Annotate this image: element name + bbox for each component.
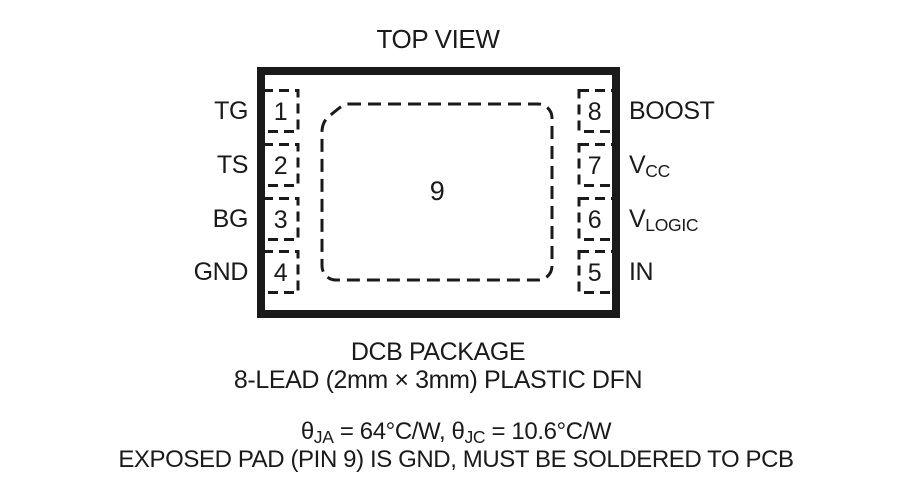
pin-7-name-base: V xyxy=(629,151,645,179)
exposed-pad-note: EXPOSED PAD (PIN 9) IS GND, MUST BE SOLD… xyxy=(0,447,912,473)
theta-jc-subscript: JC xyxy=(464,427,485,447)
theta-jc-value: = 10.6°C/W xyxy=(485,418,611,445)
theta-ja-value: = 64°C/W, xyxy=(334,418,452,445)
pin-8-name-base: BOOST xyxy=(629,97,715,125)
pin-7-number: 7 xyxy=(576,143,613,187)
pin-2-name: TS xyxy=(80,143,248,187)
pin-4-number: 4 xyxy=(262,250,299,294)
pin-7-name-sub: CC xyxy=(645,161,670,181)
theta-ja-symbol: θ xyxy=(301,418,314,445)
exposed-pad-number: 9 xyxy=(322,103,552,280)
pin-6-number: 6 xyxy=(576,197,613,241)
package-name-caption: DCB PACKAGE xyxy=(158,339,718,365)
pin-7-name: VCC xyxy=(629,143,869,187)
figure-title: TOP VIEW xyxy=(258,26,618,52)
pin-8-name: BOOST xyxy=(629,89,869,133)
pin-4-name: GND xyxy=(80,250,248,294)
pin-1-name: TG xyxy=(80,89,248,133)
pin-5-name-base: IN xyxy=(629,258,653,286)
pin-5-number: 5 xyxy=(576,250,613,294)
pin-2-number: 2 xyxy=(262,143,299,187)
pin-8-number: 8 xyxy=(576,89,613,133)
pin-3-number: 3 xyxy=(262,197,299,241)
pin-1-number: 1 xyxy=(262,89,299,133)
package-description-caption: 8-LEAD (2mm × 3mm) PLASTIC DFN xyxy=(98,367,778,393)
pin-6-name-base: V xyxy=(629,205,645,233)
theta-jc-symbol: θ xyxy=(452,418,465,445)
package-pinout-figure: TOP VIEW TG TS BG GND 1 2 3 4 8 7 6 5 BO… xyxy=(0,0,912,487)
pin-6-name: VLOGIC xyxy=(629,197,869,241)
theta-ja-subscript: JA xyxy=(314,427,334,447)
pin-5-name: IN xyxy=(629,250,869,294)
pin-6-name-sub: LOGIC xyxy=(645,215,698,235)
pin-3-name: BG xyxy=(80,197,248,241)
